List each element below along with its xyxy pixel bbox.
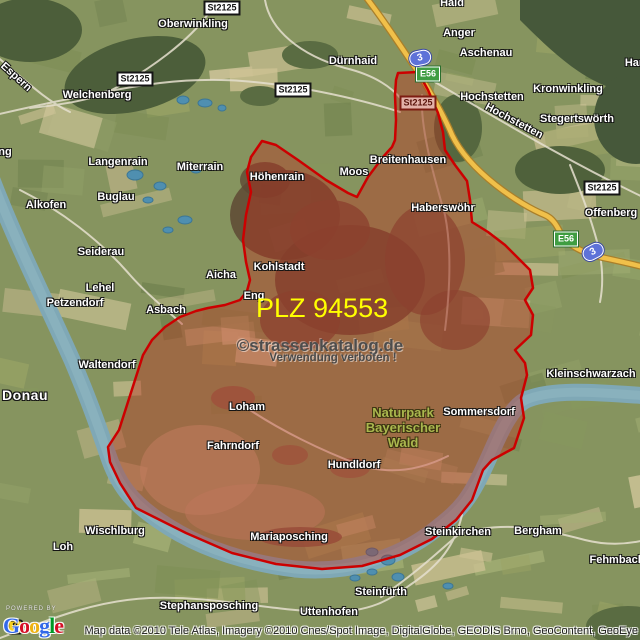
google-logo[interactable]: Google	[3, 613, 63, 639]
satellite-imagery	[0, 0, 640, 640]
google-logo-letter: o	[29, 613, 39, 638]
map-canvas[interactable]: OberwinklingHaidAngerAschenauWelchenberg…	[0, 0, 640, 640]
google-logo-letter: e	[54, 613, 63, 638]
google-logo-letter: g	[39, 613, 49, 638]
google-logo-letter: o	[19, 613, 29, 638]
google-logo-letter: G	[3, 613, 19, 638]
